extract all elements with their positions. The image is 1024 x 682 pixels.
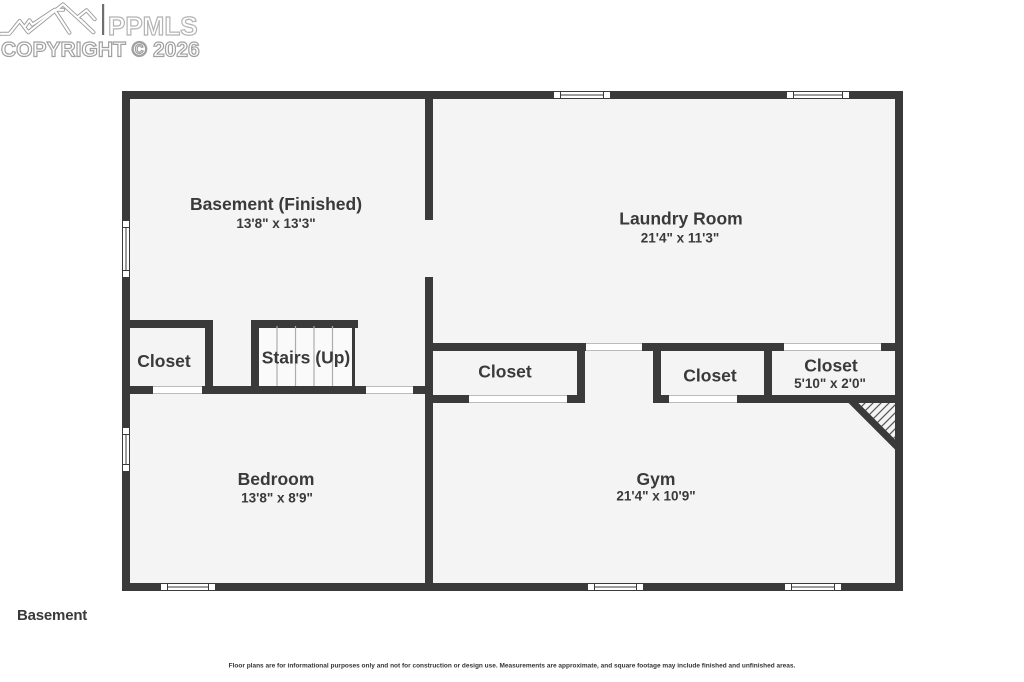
svg-text:Closet: Closet <box>478 361 532 381</box>
svg-text:Closet: Closet <box>683 365 737 385</box>
svg-text:21'4" x 11'3": 21'4" x 11'3" <box>641 230 720 245</box>
svg-text:PPMLS: PPMLS <box>108 11 198 41</box>
svg-text:21'4" x 10'9": 21'4" x 10'9" <box>616 489 695 504</box>
svg-text:Gym: Gym <box>637 469 676 489</box>
svg-text:Closet: Closet <box>137 351 191 371</box>
svg-text:13'8" x 13'3": 13'8" x 13'3" <box>236 216 315 231</box>
svg-text:Laundry Room: Laundry Room <box>619 208 742 228</box>
svg-text:Closet: Closet <box>804 355 858 375</box>
svg-text:Floor plans are for informatio: Floor plans are for informational purpos… <box>229 663 796 670</box>
svg-text:5'10" x 2'0": 5'10" x 2'0" <box>794 376 866 391</box>
svg-text:Basement: Basement <box>17 607 87 624</box>
svg-text:COPYRIGHT © 2026: COPYRIGHT © 2026 <box>1 39 200 62</box>
svg-text:Bedroom: Bedroom <box>238 469 315 489</box>
svg-text:Basement (Finished): Basement (Finished) <box>190 194 362 214</box>
svg-text:13'8" x 8'9": 13'8" x 8'9" <box>241 491 313 506</box>
svg-text:Stairs (Up): Stairs (Up) <box>262 348 350 368</box>
